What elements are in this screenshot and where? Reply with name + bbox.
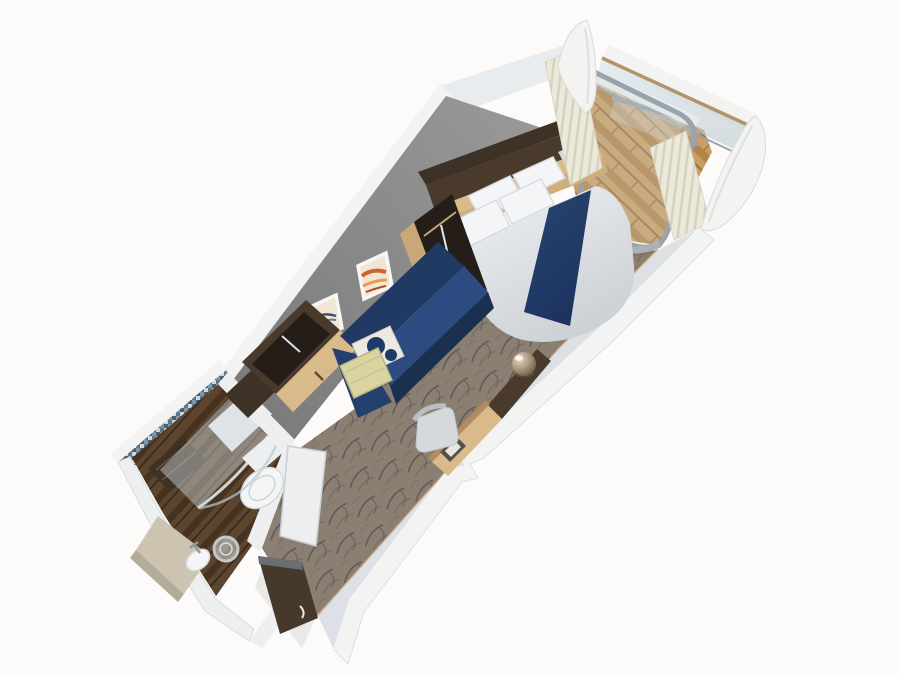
stateroom-rendering (0, 0, 900, 675)
stool-ball (512, 352, 536, 376)
stool-highlight (515, 355, 523, 361)
magnifying-mirror (214, 537, 238, 561)
floorplan-svg (0, 0, 900, 675)
pillow-pattern-dot (385, 349, 397, 361)
